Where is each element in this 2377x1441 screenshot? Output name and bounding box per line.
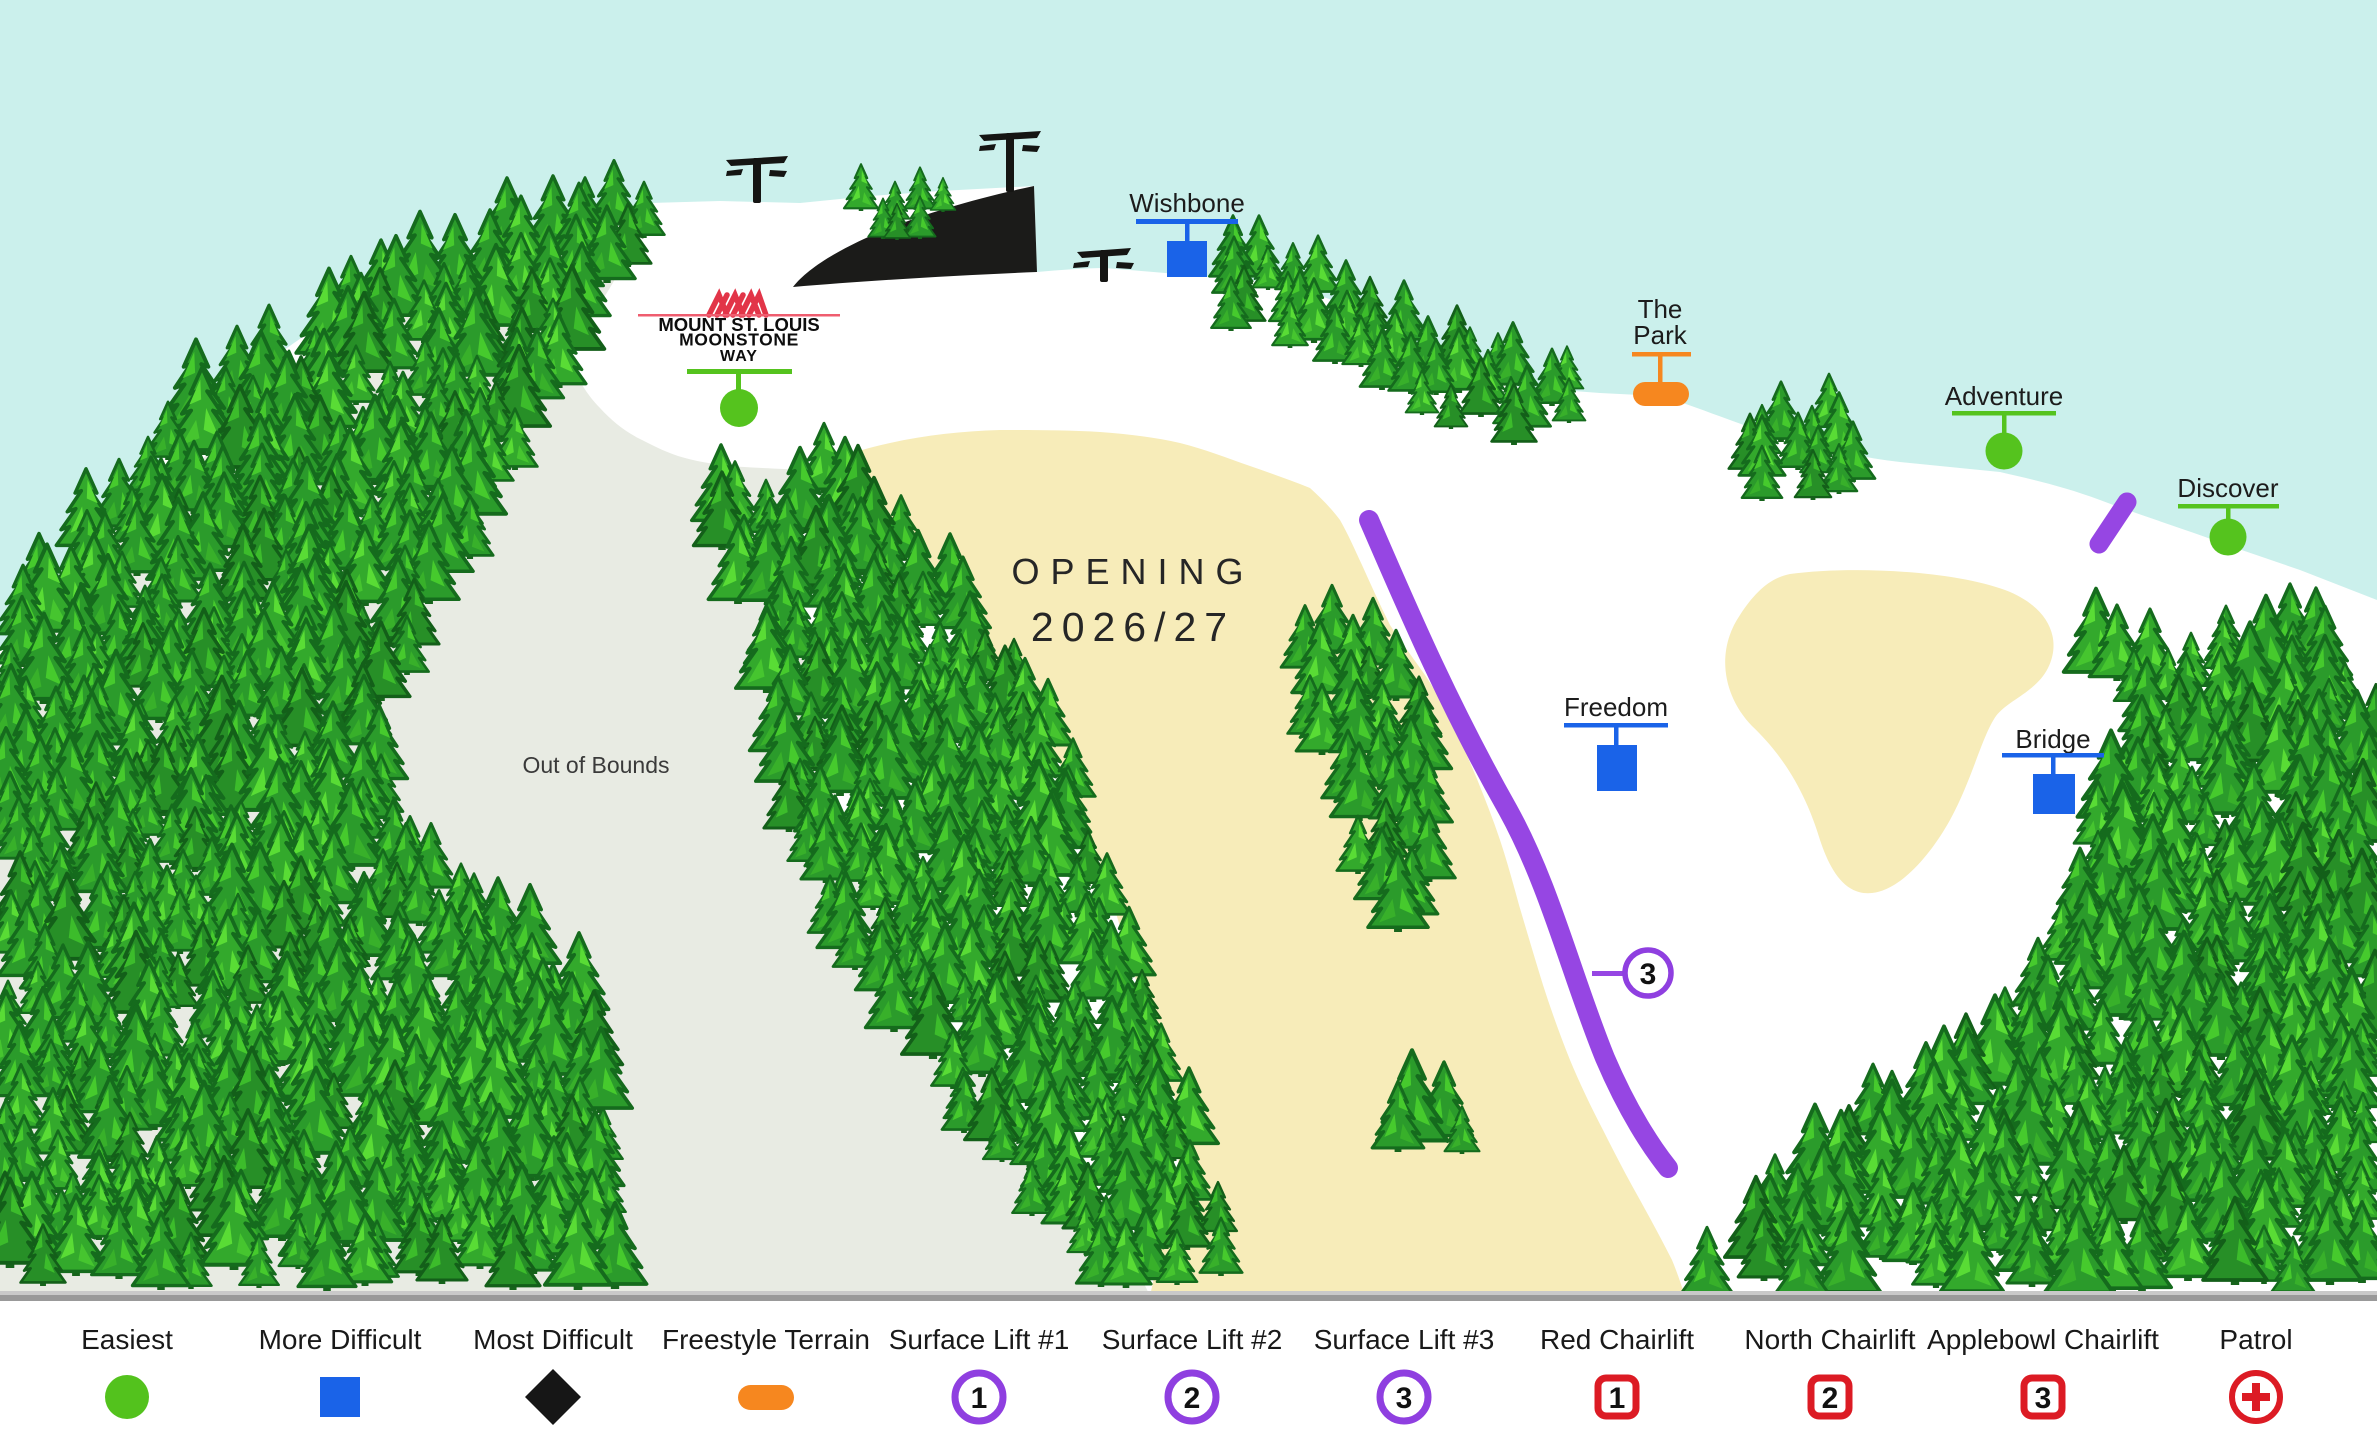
svg-text:Surface Lift #3: Surface Lift #3 [1314,1324,1495,1355]
svg-text:Wishbone: Wishbone [1129,188,1245,218]
svg-text:Surface Lift #2: Surface Lift #2 [1102,1324,1283,1355]
svg-text:OPENING: OPENING [1011,551,1254,592]
svg-text:Park: Park [1633,320,1687,350]
svg-text:Easiest: Easiest [81,1324,173,1355]
svg-text:Applebowl Chairlift: Applebowl Chairlift [1927,1324,2159,1355]
svg-text:1: 1 [1609,1382,1626,1415]
svg-text:Discover: Discover [2177,473,2278,503]
svg-text:Most Difficult: Most Difficult [473,1324,633,1355]
svg-text:Freestyle Terrain: Freestyle Terrain [662,1324,870,1355]
svg-text:WAY: WAY [720,348,758,365]
svg-text:More Difficult: More Difficult [259,1324,422,1355]
svg-text:2026/27: 2026/27 [1031,604,1235,650]
svg-text:Surface Lift #1: Surface Lift #1 [889,1324,1070,1355]
svg-text:Bridge: Bridge [2015,724,2090,754]
svg-text:Adventure: Adventure [1945,381,2064,411]
svg-text:2: 2 [1822,1382,1839,1415]
svg-text:MOONSTONE: MOONSTONE [679,330,799,350]
svg-text:Out of Bounds: Out of Bounds [522,752,669,778]
svg-text:Patrol: Patrol [2219,1324,2292,1355]
svg-text:1: 1 [971,1382,988,1415]
svg-text:3: 3 [1396,1382,1413,1415]
svg-text:North Chairlift: North Chairlift [1744,1324,1915,1355]
svg-text:2: 2 [1184,1382,1201,1415]
svg-text:3: 3 [2035,1382,2052,1415]
svg-text:3: 3 [1640,958,1657,991]
svg-text:Red Chairlift: Red Chairlift [1540,1324,1694,1355]
svg-text:Freedom: Freedom [1564,692,1668,722]
